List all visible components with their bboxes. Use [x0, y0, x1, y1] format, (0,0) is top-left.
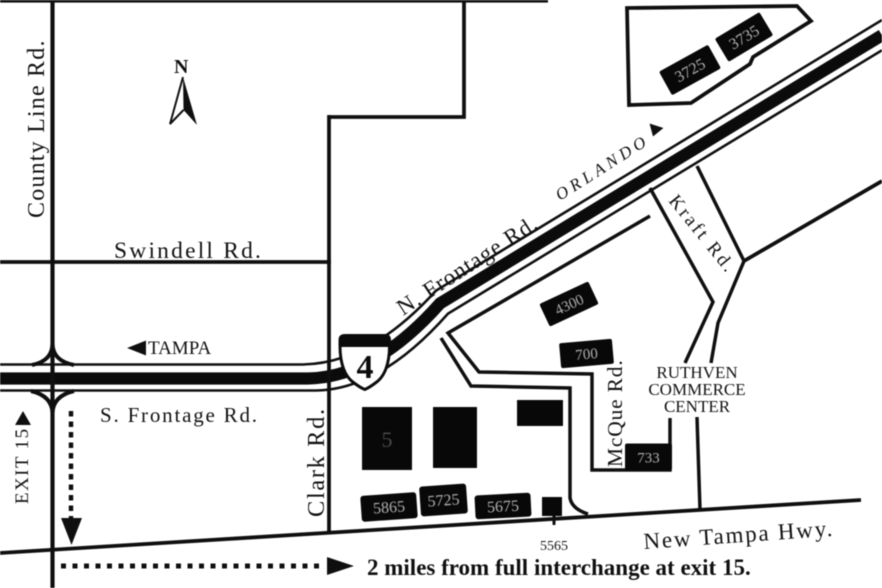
svg-text:5725: 5725 — [427, 491, 460, 510]
svg-text:733: 733 — [637, 451, 660, 467]
svg-text:2 miles from full interchange: 2 miles from full interchange at exit 15… — [367, 555, 751, 580]
svg-text:McQue Rd.: McQue Rd. — [603, 359, 627, 467]
svg-text:4: 4 — [357, 349, 374, 386]
svg-text:EXIT 15: EXIT 15 — [12, 428, 33, 504]
svg-text:TAMPA: TAMPA — [148, 338, 212, 359]
svg-text:Swindell Rd.: Swindell Rd. — [114, 238, 263, 264]
svg-text:5: 5 — [382, 427, 393, 452]
svg-text:Clark Rd.: Clark Rd. — [303, 407, 330, 517]
svg-text:CENTER: CENTER — [664, 397, 731, 416]
svg-text:5565: 5565 — [540, 539, 568, 554]
svg-text:5865: 5865 — [373, 498, 406, 517]
svg-text:County Line Rd.: County Line Rd. — [24, 39, 50, 218]
svg-text:N: N — [174, 56, 189, 78]
svg-text:S. Frontage Rd.: S. Frontage Rd. — [100, 403, 259, 427]
svg-text:700: 700 — [575, 346, 599, 364]
svg-text:5675: 5675 — [487, 498, 520, 517]
